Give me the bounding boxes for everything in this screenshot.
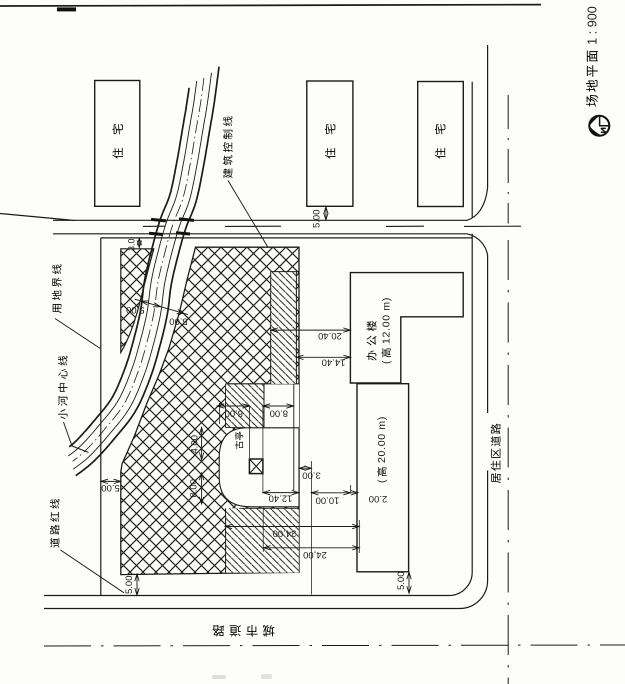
- svg-text:5.00: 5.00: [312, 210, 323, 229]
- svg-text:5.00: 5.00: [126, 304, 145, 315]
- svg-text:5.00: 5.00: [124, 576, 135, 595]
- svg-text:8.00: 8.00: [225, 407, 244, 418]
- svg-text:12.40: 12.40: [269, 493, 293, 504]
- svg-text:34.00: 34.00: [273, 528, 297, 539]
- svg-text:8.00: 8.00: [270, 407, 289, 418]
- svg-text:(: (: [376, 479, 388, 483]
- svg-text:5.00: 5.00: [396, 572, 407, 591]
- svg-text:24,00: 24,00: [303, 549, 327, 560]
- svg-text:20.00 m): 20.00 m): [376, 416, 388, 463]
- svg-text:8.00: 8.00: [189, 479, 200, 498]
- svg-text:20.40: 20.40: [318, 330, 342, 341]
- svg-text:1 : 900: 1 : 900: [585, 6, 599, 45]
- svg-text:10.00: 10.00: [316, 495, 340, 506]
- svg-text:12.00 m): 12.00 m): [381, 297, 393, 344]
- svg-text:14.40: 14.40: [322, 357, 346, 368]
- svg-text:(: (: [381, 360, 393, 364]
- svg-text:5.00: 5.00: [101, 482, 120, 493]
- svg-text:2.00: 2.00: [369, 493, 388, 504]
- svg-text:3.0: 3.0: [127, 238, 137, 251]
- svg-text:5.00: 5.00: [169, 315, 188, 326]
- svg-text:4.00: 4.00: [190, 435, 201, 454]
